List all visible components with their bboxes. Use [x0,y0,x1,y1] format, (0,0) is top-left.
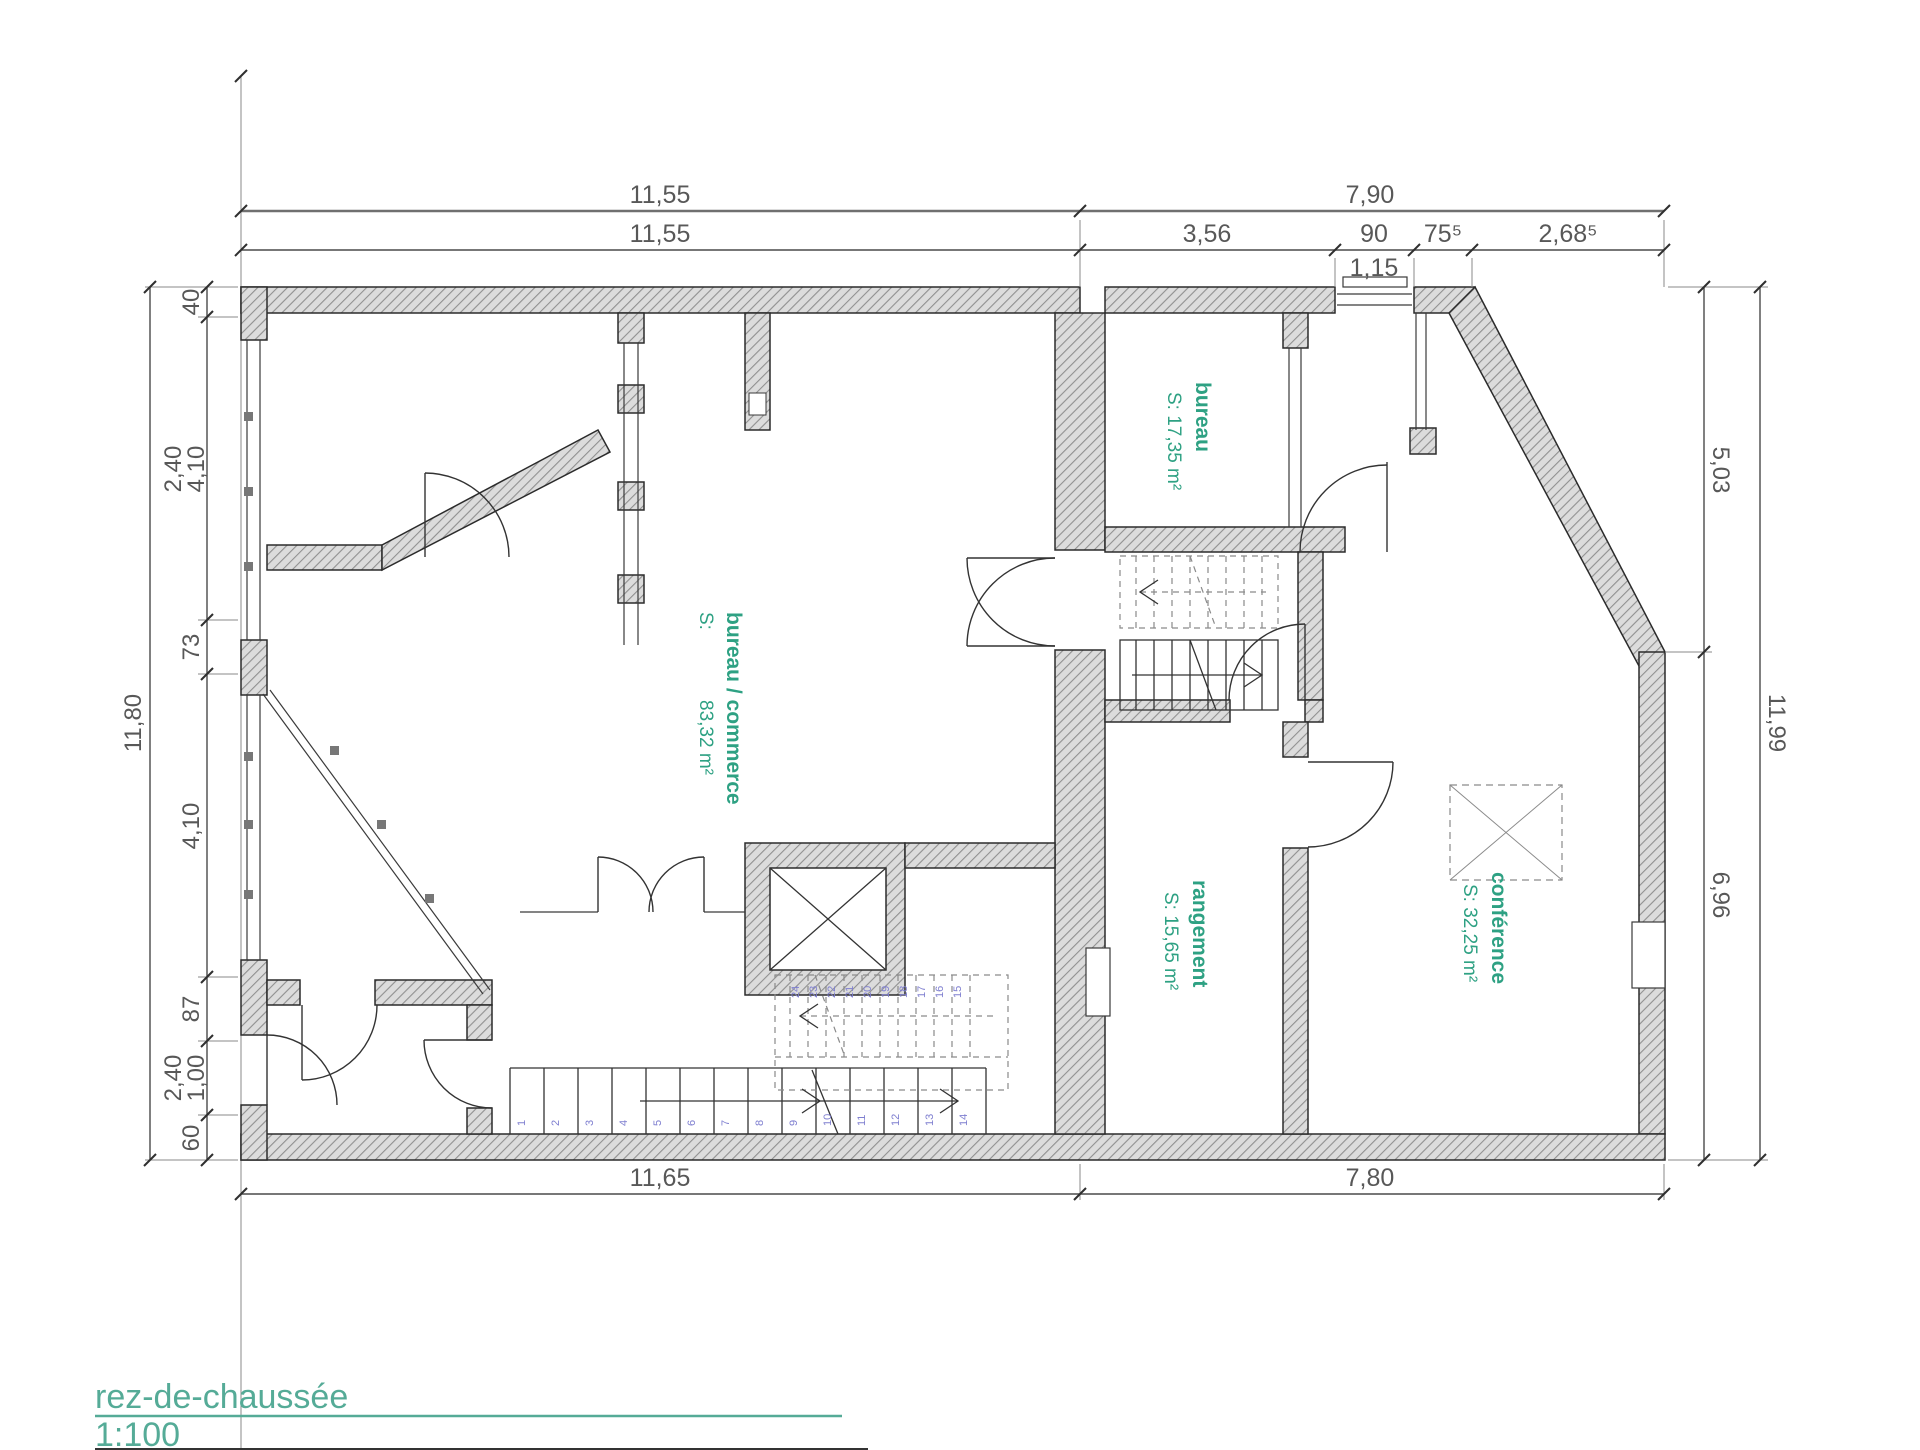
stair-step-number: 4 [618,1120,630,1126]
party-wall [1055,313,1105,550]
room-area-bureau: S: 17,35 m² [1163,392,1184,490]
stair-step-numbers-lower: 1234567891011121314 [516,1114,970,1126]
stair-step-number: 17 [916,986,928,998]
floor-plan-drawing: 1234567891011121314 24232221201918171615… [0,0,1920,1450]
dim-bottom-right: 7,80 [1346,1164,1395,1192]
dimension-ticks [144,205,1766,1200]
dim-right-1: 6,96 [1707,872,1734,919]
elevator-shaft [745,843,905,995]
room-area-rangement: S: 15,65 m² [1160,892,1181,990]
dim-top-detail-0: 11,55 [630,220,691,248]
stair-step-number: 8 [754,1120,766,1126]
dim-top-window-total: 1,15 [1350,254,1399,282]
interior-walls [267,313,1436,1134]
dimension-labels: 11,55 7,90 11,55 3,56 90 75⁵ 2,68⁵ 1,15 … [120,181,1790,1192]
dim-left-3: 73 [178,634,205,661]
title-block: rez-de-chaussée 1:100 [95,1378,868,1450]
room-area-conference: S: 32,25 m² [1459,884,1480,982]
stair-step-number: 22 [826,986,838,998]
stair-step-number: 14 [958,1114,970,1126]
stair-step-number: 9 [788,1120,800,1126]
stair-step-number: 2 [550,1120,562,1126]
dim-top-detail-3: 75⁵ [1424,220,1462,248]
wall-niche [1632,922,1665,988]
stair-step-number: 24 [790,986,802,998]
doors [267,462,1393,1108]
chamfered-corner-wall [1449,287,1665,666]
dim-left-2: 2,40 [160,446,187,493]
stair-step-number: 23 [808,986,820,998]
dim-left-overall: 11,80 [120,694,147,752]
dim-right-overall: 11,99 [1763,694,1790,752]
stair-step-number: 6 [686,1120,698,1126]
skylight [1450,785,1562,880]
dim-top-left-overall: 11,55 [630,181,691,209]
radiator [1086,948,1110,1016]
stair-step-number: 12 [890,1114,902,1126]
dim-right-0: 5,03 [1707,447,1734,494]
exterior-walls [241,287,1665,1160]
plan-title: rez-de-chaussée [95,1378,348,1416]
room-area-label-commerce: S: [695,612,716,630]
room-label-rangement: rangement [1188,880,1211,987]
double-door-party-wall [967,558,1055,646]
dim-left-5: 87 [178,996,205,1023]
main-staircase: 1234567891011121314 24232221201918171615 [510,975,1008,1134]
stair-step-number: 5 [652,1120,664,1126]
stair-step-number: 15 [952,986,964,998]
stair-step-number: 10 [822,1114,834,1126]
dim-top-detail-1: 3,56 [1183,220,1232,248]
room-area-commerce: 83,32 m² [695,700,716,775]
dim-left-7: 2,40 [160,1055,187,1102]
room-label-bureau: bureau [1191,382,1214,452]
dim-left-6: 1,00 [183,1055,210,1102]
dim-top-detail-2: 90 [1360,220,1388,248]
stair-step-number: 13 [924,1114,936,1126]
room-label-commerce: bureau / commerce [722,612,745,805]
stair-step-number: 18 [898,986,910,998]
dim-top-detail-4: 2,68⁵ [1538,220,1597,248]
stair-step-number: 3 [584,1120,596,1126]
dim-left-8: 60 [178,1125,205,1152]
dim-bottom-left: 11,65 [630,1164,691,1192]
door-arc [1308,762,1393,847]
stair-step-number: 20 [862,986,874,998]
door-arc [302,1005,377,1080]
windows-and-glazing [244,277,1665,1016]
stair-step-number: 7 [720,1120,732,1126]
party-wall [1055,650,1105,1134]
stair-step-number: 19 [880,986,892,998]
plan-scale: 1:100 [95,1416,180,1450]
door-arc [424,1040,492,1108]
dim-left-4: 4,10 [178,803,205,850]
stair-step-number: 21 [844,986,856,998]
dim-left-1: 4,10 [183,446,210,493]
stair-step-number: 11 [856,1115,868,1126]
room-label-conference: conférence [1487,872,1510,984]
stair-step-number: 16 [934,986,946,998]
door-arc [1229,624,1305,700]
stair-step-number: 1 [516,1120,528,1126]
dim-left-0: 40 [178,289,205,316]
floor-plan-sheet: 1234567891011121314 24232221201918171615… [0,0,1920,1450]
dim-top-right-overall: 7,90 [1346,181,1395,209]
sloped-glazed-partition [270,690,490,990]
hall-staircase [1120,556,1278,710]
double-door-corridor [598,857,704,912]
dimension-lines: 11,55 7,90 11,55 3,56 90 75⁵ 2,68⁵ 1,15 … [120,181,1790,1200]
